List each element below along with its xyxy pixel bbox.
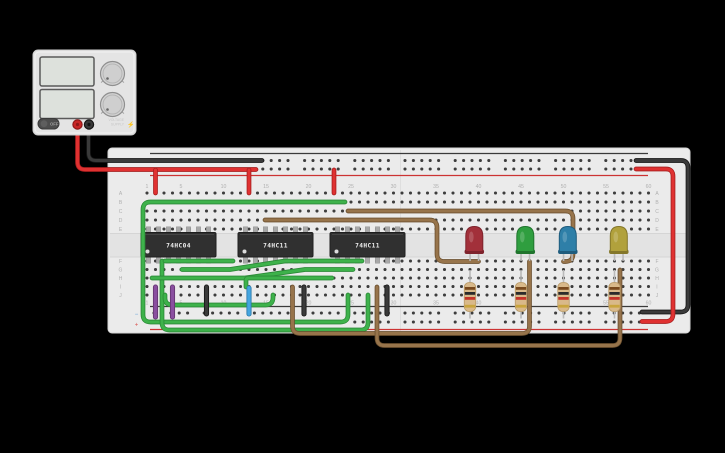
col-number-20-top: 20 [306,184,312,190]
col-number-1-top: 1 [146,184,149,190]
led-highlight [563,232,568,243]
led-highlight [469,232,474,243]
resistor-band-red [558,297,568,300]
terminal-hole [76,123,79,126]
col-number-30-top: 30 [391,184,397,190]
resistor-band-black [558,292,568,295]
ic-pin1-dot [146,250,150,254]
resistor-band-red [609,297,619,300]
ic-pin [385,257,389,264]
resistor-band-brown [516,287,526,290]
ic-pin [253,257,257,264]
ic-pin1-dot [335,250,339,254]
row-letter-G-r: G [655,267,659,273]
resistor-band-black [609,292,619,295]
brand-line2: SUPPLY [111,123,125,127]
col-number-5-top: 5 [180,184,183,190]
resistor-band-gold [465,305,475,308]
row-letter-I-l: I [120,284,121,290]
knob-indicator [106,77,109,80]
row-letter-H-l: H [119,276,123,282]
ic-label: 74HC04 [166,242,191,249]
led-body [466,227,483,252]
col-number-35-top: 35 [433,184,439,190]
col-number-25-top: 25 [348,184,354,190]
ic-pin [146,257,150,264]
knob-face [103,95,122,114]
row-letter-H-r: H [655,276,659,282]
row-letter-G-l: G [119,267,123,273]
row-letter-I-r: I [656,284,657,290]
col-number-50-top: 50 [561,184,567,190]
resistor-band-brown [558,287,568,290]
rail-minus-label: − [135,312,139,318]
resistor-band-gold [558,305,568,308]
col-number-40-bottom: 40 [476,301,482,307]
col-number-35-bottom: 35 [433,301,439,307]
led-highlight [520,232,525,243]
col-number-1-bottom: 1 [146,301,149,307]
led-body [517,227,534,252]
row-letter-D-r: D [655,218,659,224]
row-letter-F-l: F [119,259,122,265]
off-toggle[interactable]: OFF [38,119,59,130]
resistor-band-brown [465,287,475,290]
resistor-band-gold [609,305,619,308]
display-bottom [40,90,94,119]
off-label: OFF [50,122,59,127]
voltage-knob[interactable] [101,62,125,86]
resistor-band-gold [516,305,526,308]
led-body [610,227,627,252]
current-knob[interactable] [101,93,125,117]
col-number-30-bottom: 30 [391,301,397,307]
col-number-45-top: 45 [518,184,524,190]
off-toggle-thumb [41,120,48,127]
resistor-band-red [516,297,526,300]
row-letter-C-r: C [655,209,659,215]
circuit-canvas: −+AABBCCDDEEFFGGHHIIJJ115510101515202025… [0,0,725,453]
col-number-55-top: 55 [603,184,609,190]
row-letter-F-r: F [655,259,658,265]
row-letter-C-l: C [119,209,123,215]
ic-pin [365,257,369,264]
resistor-band-black [465,292,475,295]
col-number-15-top: 15 [263,184,269,190]
ic-pin [243,257,247,264]
negative-terminal[interactable] [84,120,93,129]
row-letter-D-l: D [119,218,123,224]
brand-line1: VOLTAGE [108,118,124,122]
display-top [40,57,94,86]
led-body [559,227,576,252]
ic-pin1-dot [243,250,247,254]
resistor-band-red [465,297,475,300]
knob-indicator [106,108,109,111]
col-number-10-top: 10 [221,184,227,190]
rail-plus-label: + [135,323,139,329]
col-number-40-top: 40 [476,184,482,190]
ic-pin [375,257,379,264]
col-number-55-bottom: 55 [603,301,609,307]
led-highlight [614,232,619,243]
resistor-band-black [516,292,526,295]
circuit-workspace: −+AABBCCDDEEFFGGHHIIJJ115510101515202025… [0,0,725,453]
power-supply[interactable]: OFFVOLTAGESUPPLY⚡ [33,50,136,135]
bolt-icon: ⚡ [127,121,134,129]
terminal-hole [87,123,90,126]
ic-pin [395,257,399,264]
knob-face [103,64,122,83]
positive-terminal[interactable] [73,120,82,129]
col-number-60-top: 60 [646,184,652,190]
resistor-band-brown [609,287,619,290]
ic-label: 74HC11 [263,242,288,249]
ic-label: 74HC11 [355,242,380,249]
col-number-60-bottom: 60 [646,301,652,307]
